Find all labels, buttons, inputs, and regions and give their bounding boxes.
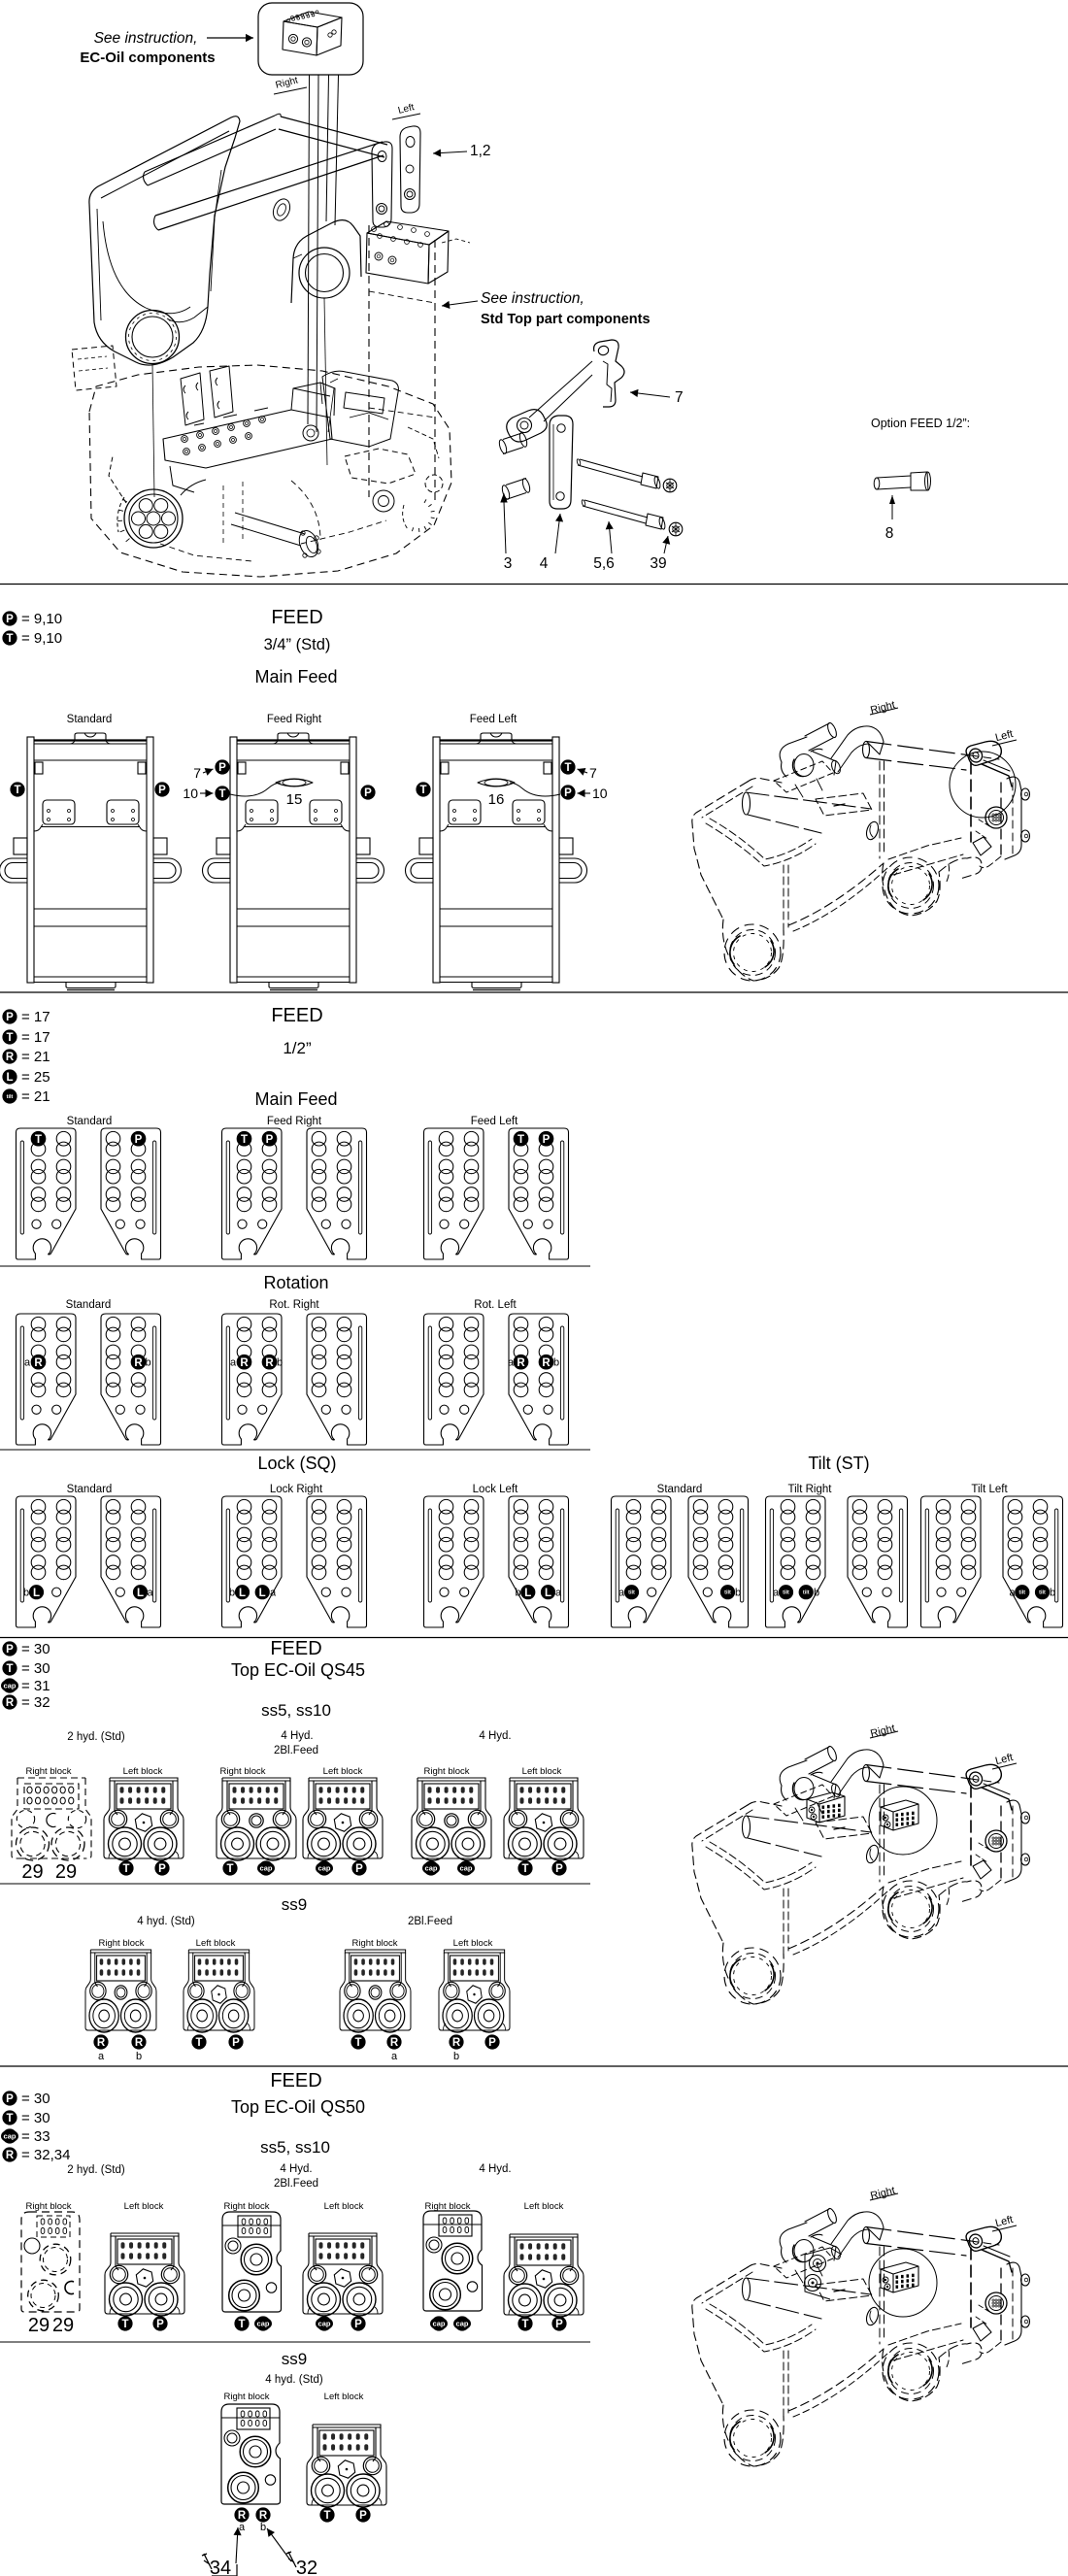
svg-text:Left block: Left block [123, 1766, 163, 1777]
svg-text:cap: cap [318, 2319, 331, 2327]
svg-text:10: 10 [592, 786, 608, 801]
svg-text:Right block: Right block [425, 2201, 471, 2212]
svg-text:R: R [240, 1357, 249, 1369]
svg-text:Lock Right: Lock Right [270, 1484, 323, 1495]
svg-text:Standard: Standard [66, 1299, 112, 1311]
svg-text:T: T [218, 788, 225, 800]
svg-text:cap: cap [260, 1863, 273, 1872]
svg-text:7: 7 [589, 765, 597, 781]
svg-text:Feed Left: Feed Left [471, 1116, 518, 1127]
svg-text:L: L [137, 1588, 144, 1599]
svg-text:= 17: = 17 [21, 1009, 50, 1025]
svg-text:a: a [98, 2051, 105, 2062]
svg-text:1/2”: 1/2” [283, 1039, 312, 1057]
svg-text:cap: cap [433, 2319, 446, 2327]
svg-text:Lock (SQ): Lock (SQ) [257, 1454, 336, 1473]
svg-text:T: T [521, 2319, 528, 2330]
svg-text:P: P [218, 762, 226, 774]
svg-text:8: 8 [885, 525, 894, 542]
svg-text:cap: cap [425, 1863, 438, 1872]
svg-text:Left block: Left block [524, 2201, 564, 2212]
svg-text:ss5, ss10: ss5, ss10 [260, 2138, 330, 2157]
svg-text:3/4” (Std): 3/4” (Std) [264, 636, 331, 653]
svg-text:P: P [564, 787, 572, 799]
svg-text:R: R [6, 1697, 15, 1709]
svg-text:P: P [266, 1134, 274, 1146]
svg-text:P: P [488, 2037, 496, 2049]
svg-text:T: T [241, 1134, 248, 1146]
svg-text:4 Hyd.: 4 Hyd. [479, 1730, 511, 1742]
svg-text:b: b [453, 2051, 459, 2062]
svg-text:R: R [265, 1357, 274, 1369]
svg-text:L: L [524, 1588, 531, 1599]
svg-text:b: b [1050, 1588, 1055, 1599]
svg-text:2 hyd. (Std): 2 hyd. (Std) [67, 2164, 125, 2176]
svg-text:R: R [97, 2037, 106, 2049]
svg-text:L: L [259, 1588, 266, 1599]
svg-text:a: a [270, 1588, 277, 1599]
svg-text:T: T [6, 1032, 13, 1044]
svg-text:Feed Right: Feed Right [267, 1116, 322, 1127]
svg-text:29: 29 [28, 2315, 50, 2336]
svg-text:P: P [555, 2319, 563, 2330]
svg-text:a: a [230, 1357, 237, 1369]
svg-text:b: b [277, 1357, 283, 1369]
svg-text:10: 10 [183, 786, 198, 801]
svg-text:T: T [6, 2113, 13, 2124]
svg-text:T: T [35, 1134, 42, 1146]
svg-text:Std Top part components: Std Top part components [481, 312, 651, 327]
svg-text:= 9,10: = 9,10 [21, 630, 62, 647]
svg-text:Right block: Right block [26, 2201, 72, 2212]
svg-text:2 hyd. (Std): 2 hyd. (Std) [67, 1731, 125, 1743]
svg-text:T: T [121, 2319, 128, 2330]
svg-text:b: b [515, 1588, 520, 1599]
svg-text:R: R [6, 1052, 15, 1063]
svg-text:Tilt Right: Tilt Right [788, 1484, 833, 1495]
svg-text:ss5, ss10: ss5, ss10 [261, 1701, 331, 1720]
svg-text:2Bl.Feed: 2Bl.Feed [274, 1745, 318, 1756]
svg-text:= 9,10: = 9,10 [21, 611, 62, 627]
svg-text:T: T [195, 2037, 202, 2049]
svg-text:= 30: = 30 [21, 1641, 50, 1657]
svg-text:29: 29 [52, 2315, 74, 2336]
svg-text:= 17: = 17 [21, 1029, 50, 1046]
svg-text:Right block: Right block [99, 1938, 145, 1949]
svg-text:T: T [238, 2319, 245, 2330]
svg-text:a: a [24, 1357, 31, 1369]
svg-text:39: 39 [650, 555, 666, 572]
svg-text:P: P [232, 2037, 240, 2049]
svg-text:R: R [134, 1357, 143, 1369]
svg-text:P: P [555, 1863, 563, 1875]
svg-text:cap: cap [456, 2319, 469, 2327]
svg-text:T: T [517, 1134, 524, 1146]
svg-text:P: P [135, 1134, 143, 1146]
svg-text:L: L [545, 1588, 551, 1599]
svg-text:= 32: = 32 [21, 1694, 50, 1711]
svg-text:29: 29 [55, 1861, 77, 1883]
svg-text:tilt: tilt [783, 1590, 789, 1596]
svg-text:T: T [564, 762, 571, 774]
svg-text:ss9: ss9 [282, 1895, 307, 1914]
svg-text:a: a [391, 2051, 398, 2062]
svg-text:T: T [521, 1863, 528, 1875]
svg-text:tilt: tilt [1039, 1590, 1046, 1596]
svg-text:P: P [6, 2093, 14, 2105]
svg-text:Main Feed: Main Feed [254, 667, 337, 686]
svg-text:Option FEED 1/2”:: Option FEED 1/2”: [871, 417, 970, 430]
svg-text:ss9: ss9 [282, 2350, 307, 2368]
svg-text:T: T [122, 1863, 129, 1875]
svg-text:2Bl.Feed: 2Bl.Feed [408, 1916, 452, 1927]
svg-text:tilt: tilt [724, 1590, 731, 1596]
svg-text:4: 4 [540, 555, 549, 572]
svg-text:Standard: Standard [67, 714, 113, 725]
svg-text:3: 3 [504, 555, 513, 572]
svg-text:Rotation: Rotation [263, 1273, 328, 1292]
svg-text:= 25: = 25 [21, 1069, 50, 1086]
svg-text:a: a [555, 1588, 562, 1599]
svg-text:cap: cap [318, 1863, 331, 1872]
svg-text:EC-Oil components: EC-Oil components [80, 50, 215, 66]
svg-text:= 33: = 33 [21, 2128, 50, 2145]
svg-text:b: b [735, 1588, 741, 1599]
svg-text:L: L [6, 1072, 13, 1084]
svg-text:= 21: = 21 [21, 1049, 50, 1065]
svg-text:b: b [260, 2522, 266, 2533]
svg-text:a: a [147, 1588, 153, 1599]
svg-text:tilt: tilt [1018, 1590, 1025, 1596]
svg-text:See instruction,: See instruction, [94, 30, 198, 47]
svg-text:4 Hyd.: 4 Hyd. [280, 2163, 312, 2175]
svg-text:Standard: Standard [67, 1484, 113, 1495]
svg-text:Right block: Right block [224, 2201, 270, 2212]
svg-text:Right block: Right block [220, 1766, 266, 1777]
svg-text:4 Hyd.: 4 Hyd. [281, 1730, 313, 1742]
svg-text:P: P [364, 787, 372, 799]
svg-text:R: R [542, 1357, 551, 1369]
svg-text:b: b [23, 1588, 29, 1599]
svg-text:Left block: Left block [522, 1766, 562, 1777]
svg-text:tilt: tilt [7, 1094, 14, 1100]
svg-text:Rot. Right: Rot. Right [269, 1299, 319, 1311]
svg-text:a: a [618, 1588, 625, 1599]
svg-text:Rot. Left: Rot. Left [474, 1299, 517, 1311]
svg-text:Left block: Left block [196, 1938, 236, 1949]
svg-text:b: b [553, 1357, 559, 1369]
svg-text:Left block: Left block [324, 2201, 364, 2212]
svg-text:P: P [359, 2510, 367, 2522]
svg-text:T: T [14, 785, 20, 796]
svg-text:L: L [33, 1588, 40, 1599]
svg-text:P: P [6, 1644, 14, 1656]
svg-text:1,2: 1,2 [470, 143, 491, 159]
svg-text:cap: cap [460, 1863, 473, 1872]
svg-text:Left block: Left block [323, 1766, 363, 1777]
svg-text:T: T [419, 785, 426, 796]
svg-text:Right block: Right block [424, 1766, 470, 1777]
svg-text:a: a [773, 1588, 780, 1599]
svg-text:7: 7 [675, 389, 684, 406]
svg-text:FEED: FEED [270, 1638, 321, 1659]
svg-text:Lock Left: Lock Left [473, 1484, 518, 1495]
svg-text:= 30: = 30 [21, 1660, 50, 1677]
svg-text:Main Feed: Main Feed [254, 1089, 337, 1109]
svg-text:4 Hyd.: 4 Hyd. [479, 2163, 511, 2175]
svg-text:= 31: = 31 [21, 1678, 50, 1694]
svg-text:a: a [239, 2522, 246, 2533]
svg-text:R: R [34, 1357, 43, 1369]
svg-text:T: T [6, 633, 13, 645]
svg-text:cap: cap [4, 1681, 17, 1689]
svg-text:tilt: tilt [803, 1590, 810, 1596]
svg-text:P: P [156, 2319, 164, 2330]
svg-text:cap: cap [4, 2131, 17, 2140]
svg-text:7: 7 [193, 765, 201, 781]
svg-text:FEED: FEED [270, 2070, 321, 2091]
svg-text:T: T [323, 2510, 330, 2522]
svg-text:R: R [135, 2037, 144, 2049]
svg-text:tilt: tilt [628, 1590, 635, 1596]
svg-text:L: L [239, 1588, 246, 1599]
svg-text:See instruction,: See instruction, [481, 290, 584, 307]
svg-text:Tilt (ST): Tilt (ST) [808, 1454, 869, 1473]
svg-text:P: P [158, 1863, 166, 1875]
svg-text:34: 34 [210, 2558, 231, 2576]
svg-text:a: a [1009, 1588, 1016, 1599]
svg-text:R: R [6, 2150, 15, 2161]
svg-text:Standard: Standard [67, 1116, 113, 1127]
svg-text:32: 32 [296, 2558, 317, 2576]
svg-text:P: P [158, 785, 166, 796]
svg-text:T: T [354, 2037, 361, 2049]
svg-text:R: R [452, 2037, 461, 2049]
svg-text:P: P [6, 614, 14, 625]
svg-text:P: P [354, 2319, 362, 2330]
svg-text:5,6: 5,6 [593, 555, 615, 572]
svg-text:= 30: = 30 [21, 2110, 50, 2126]
svg-text:R: R [517, 1357, 525, 1369]
svg-text:Right block: Right block [224, 2392, 270, 2402]
svg-text:15: 15 [286, 791, 303, 808]
svg-text:Left block: Left block [453, 1938, 493, 1949]
svg-text:Top EC-Oil QS45: Top EC-Oil QS45 [231, 1660, 365, 1680]
svg-text:= 32,34: = 32,34 [21, 2147, 70, 2163]
svg-text:P: P [6, 1012, 14, 1023]
svg-text:FEED: FEED [271, 607, 322, 628]
svg-text:4 hyd. (Std): 4 hyd. (Std) [137, 1916, 195, 1927]
svg-text:FEED: FEED [271, 1005, 322, 1026]
svg-text:Left block: Left block [324, 2392, 364, 2402]
svg-text:b: b [136, 2051, 142, 2062]
svg-text:b: b [229, 1588, 235, 1599]
svg-text:16: 16 [488, 791, 505, 808]
svg-text:Tilt Left: Tilt Left [971, 1484, 1008, 1495]
svg-text:Top EC-Oil QS50: Top EC-Oil QS50 [231, 2097, 365, 2117]
svg-text:Right block: Right block [352, 1938, 398, 1949]
svg-text:P: P [355, 1863, 363, 1875]
svg-text:a: a [508, 1357, 515, 1369]
svg-text:P: P [543, 1134, 551, 1146]
svg-text:R: R [238, 2510, 247, 2522]
svg-text:Feed Right: Feed Right [267, 714, 322, 725]
svg-text:Standard: Standard [657, 1484, 703, 1495]
svg-text:Feed Left: Feed Left [470, 714, 517, 725]
svg-text:R: R [259, 2510, 268, 2522]
svg-text:4 hyd. (Std): 4 hyd. (Std) [265, 2374, 323, 2386]
svg-text:2Bl.Feed: 2Bl.Feed [274, 2178, 318, 2190]
svg-text:cap: cap [257, 2319, 270, 2327]
svg-text:Left block: Left block [124, 2201, 164, 2212]
svg-text:= 21: = 21 [21, 1088, 50, 1105]
svg-text:b: b [814, 1588, 819, 1599]
svg-text:= 30: = 30 [21, 2091, 50, 2107]
svg-text:T: T [6, 1663, 13, 1675]
svg-text:R: R [390, 2037, 399, 2049]
svg-text:T: T [226, 1863, 233, 1875]
svg-text:29: 29 [21, 1861, 43, 1883]
svg-text:b: b [145, 1357, 150, 1369]
svg-text:Right block: Right block [26, 1766, 72, 1777]
